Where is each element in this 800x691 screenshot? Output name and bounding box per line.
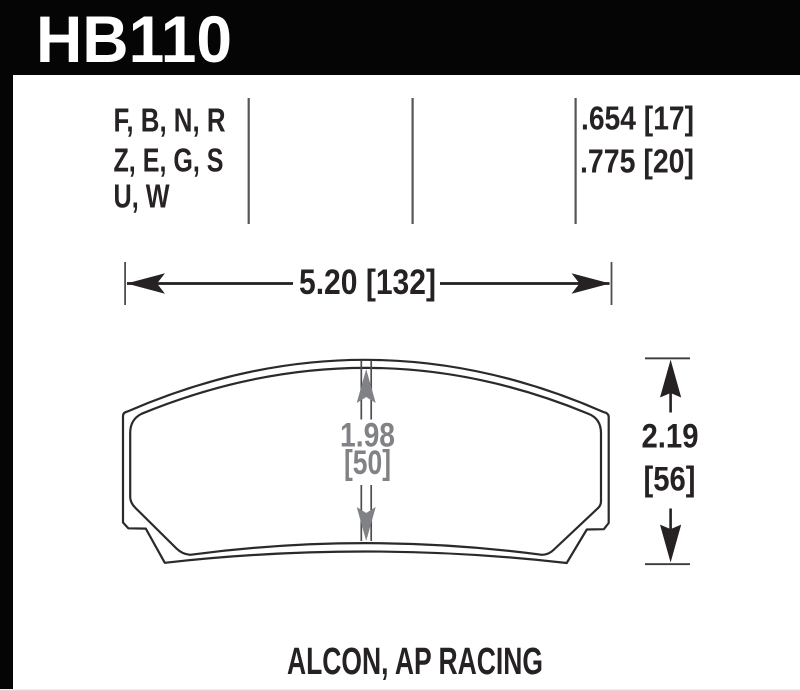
- svg-text:[50]: [50]: [344, 444, 391, 482]
- svg-text:Z, E, G, S: Z, E, G, S: [114, 143, 224, 180]
- svg-text:5.20 [132]: 5.20 [132]: [299, 262, 436, 302]
- svg-text:F, B, N, R: F, B, N, R: [114, 103, 226, 140]
- svg-text:ALCON, AP RACING: ALCON, AP RACING: [287, 641, 543, 683]
- svg-text:.654 [17]: .654 [17]: [581, 101, 694, 138]
- svg-text:2.19: 2.19: [642, 418, 699, 456]
- svg-text:[56]: [56]: [644, 461, 696, 499]
- svg-text:.775 [20]: .775 [20]: [580, 144, 694, 181]
- svg-text:HB110: HB110: [36, 3, 232, 76]
- svg-text:U, W: U, W: [114, 178, 170, 215]
